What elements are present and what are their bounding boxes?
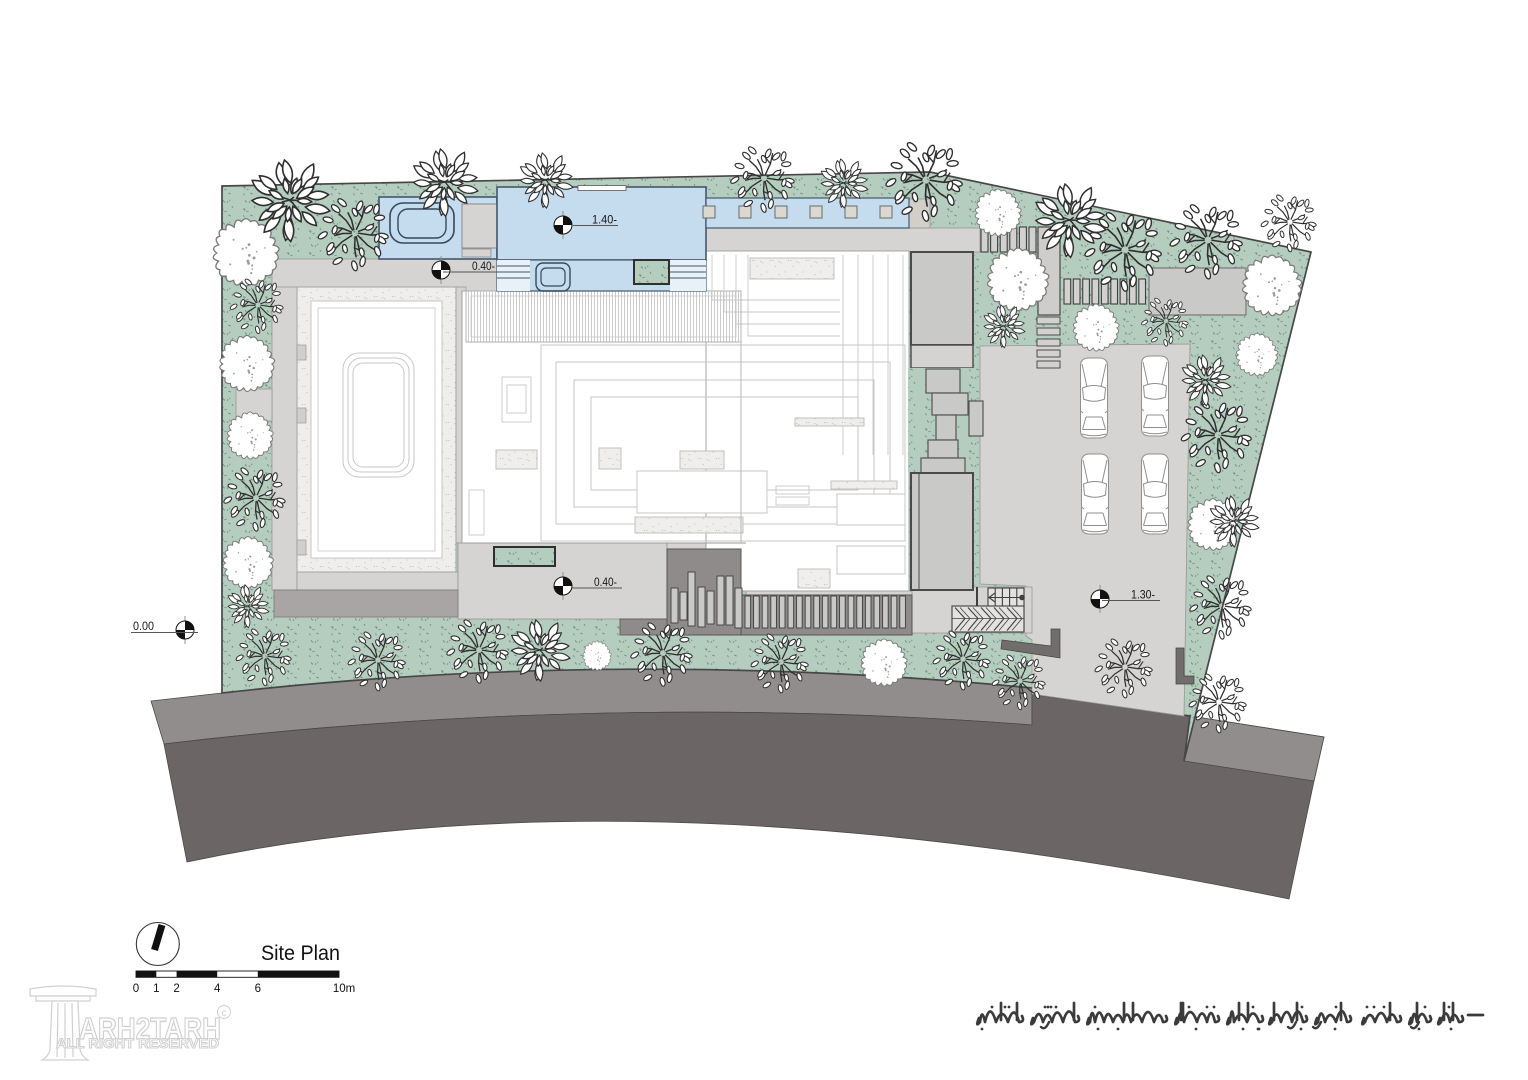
svg-text:10m: 10m [333, 983, 355, 995]
svg-text:ALL RIGHT RESERVED: ALL RIGHT RESERVED [56, 1036, 219, 1051]
svg-text:2: 2 [173, 983, 179, 995]
svg-text:1: 1 [153, 983, 159, 995]
svg-text:0.40-: 0.40- [472, 259, 495, 273]
svg-text:6: 6 [255, 983, 261, 995]
svg-text:1.30-: 1.30- [1131, 588, 1155, 602]
svg-text:Site Plan: Site Plan [261, 941, 340, 965]
svg-text:0.40-: 0.40- [594, 575, 617, 589]
svg-text:c: c [222, 1008, 227, 1019]
svg-text:0: 0 [133, 983, 139, 995]
svg-text:0.00: 0.00 [133, 619, 154, 633]
svg-text:4: 4 [214, 983, 221, 995]
svg-text:1.40-: 1.40- [592, 213, 617, 227]
